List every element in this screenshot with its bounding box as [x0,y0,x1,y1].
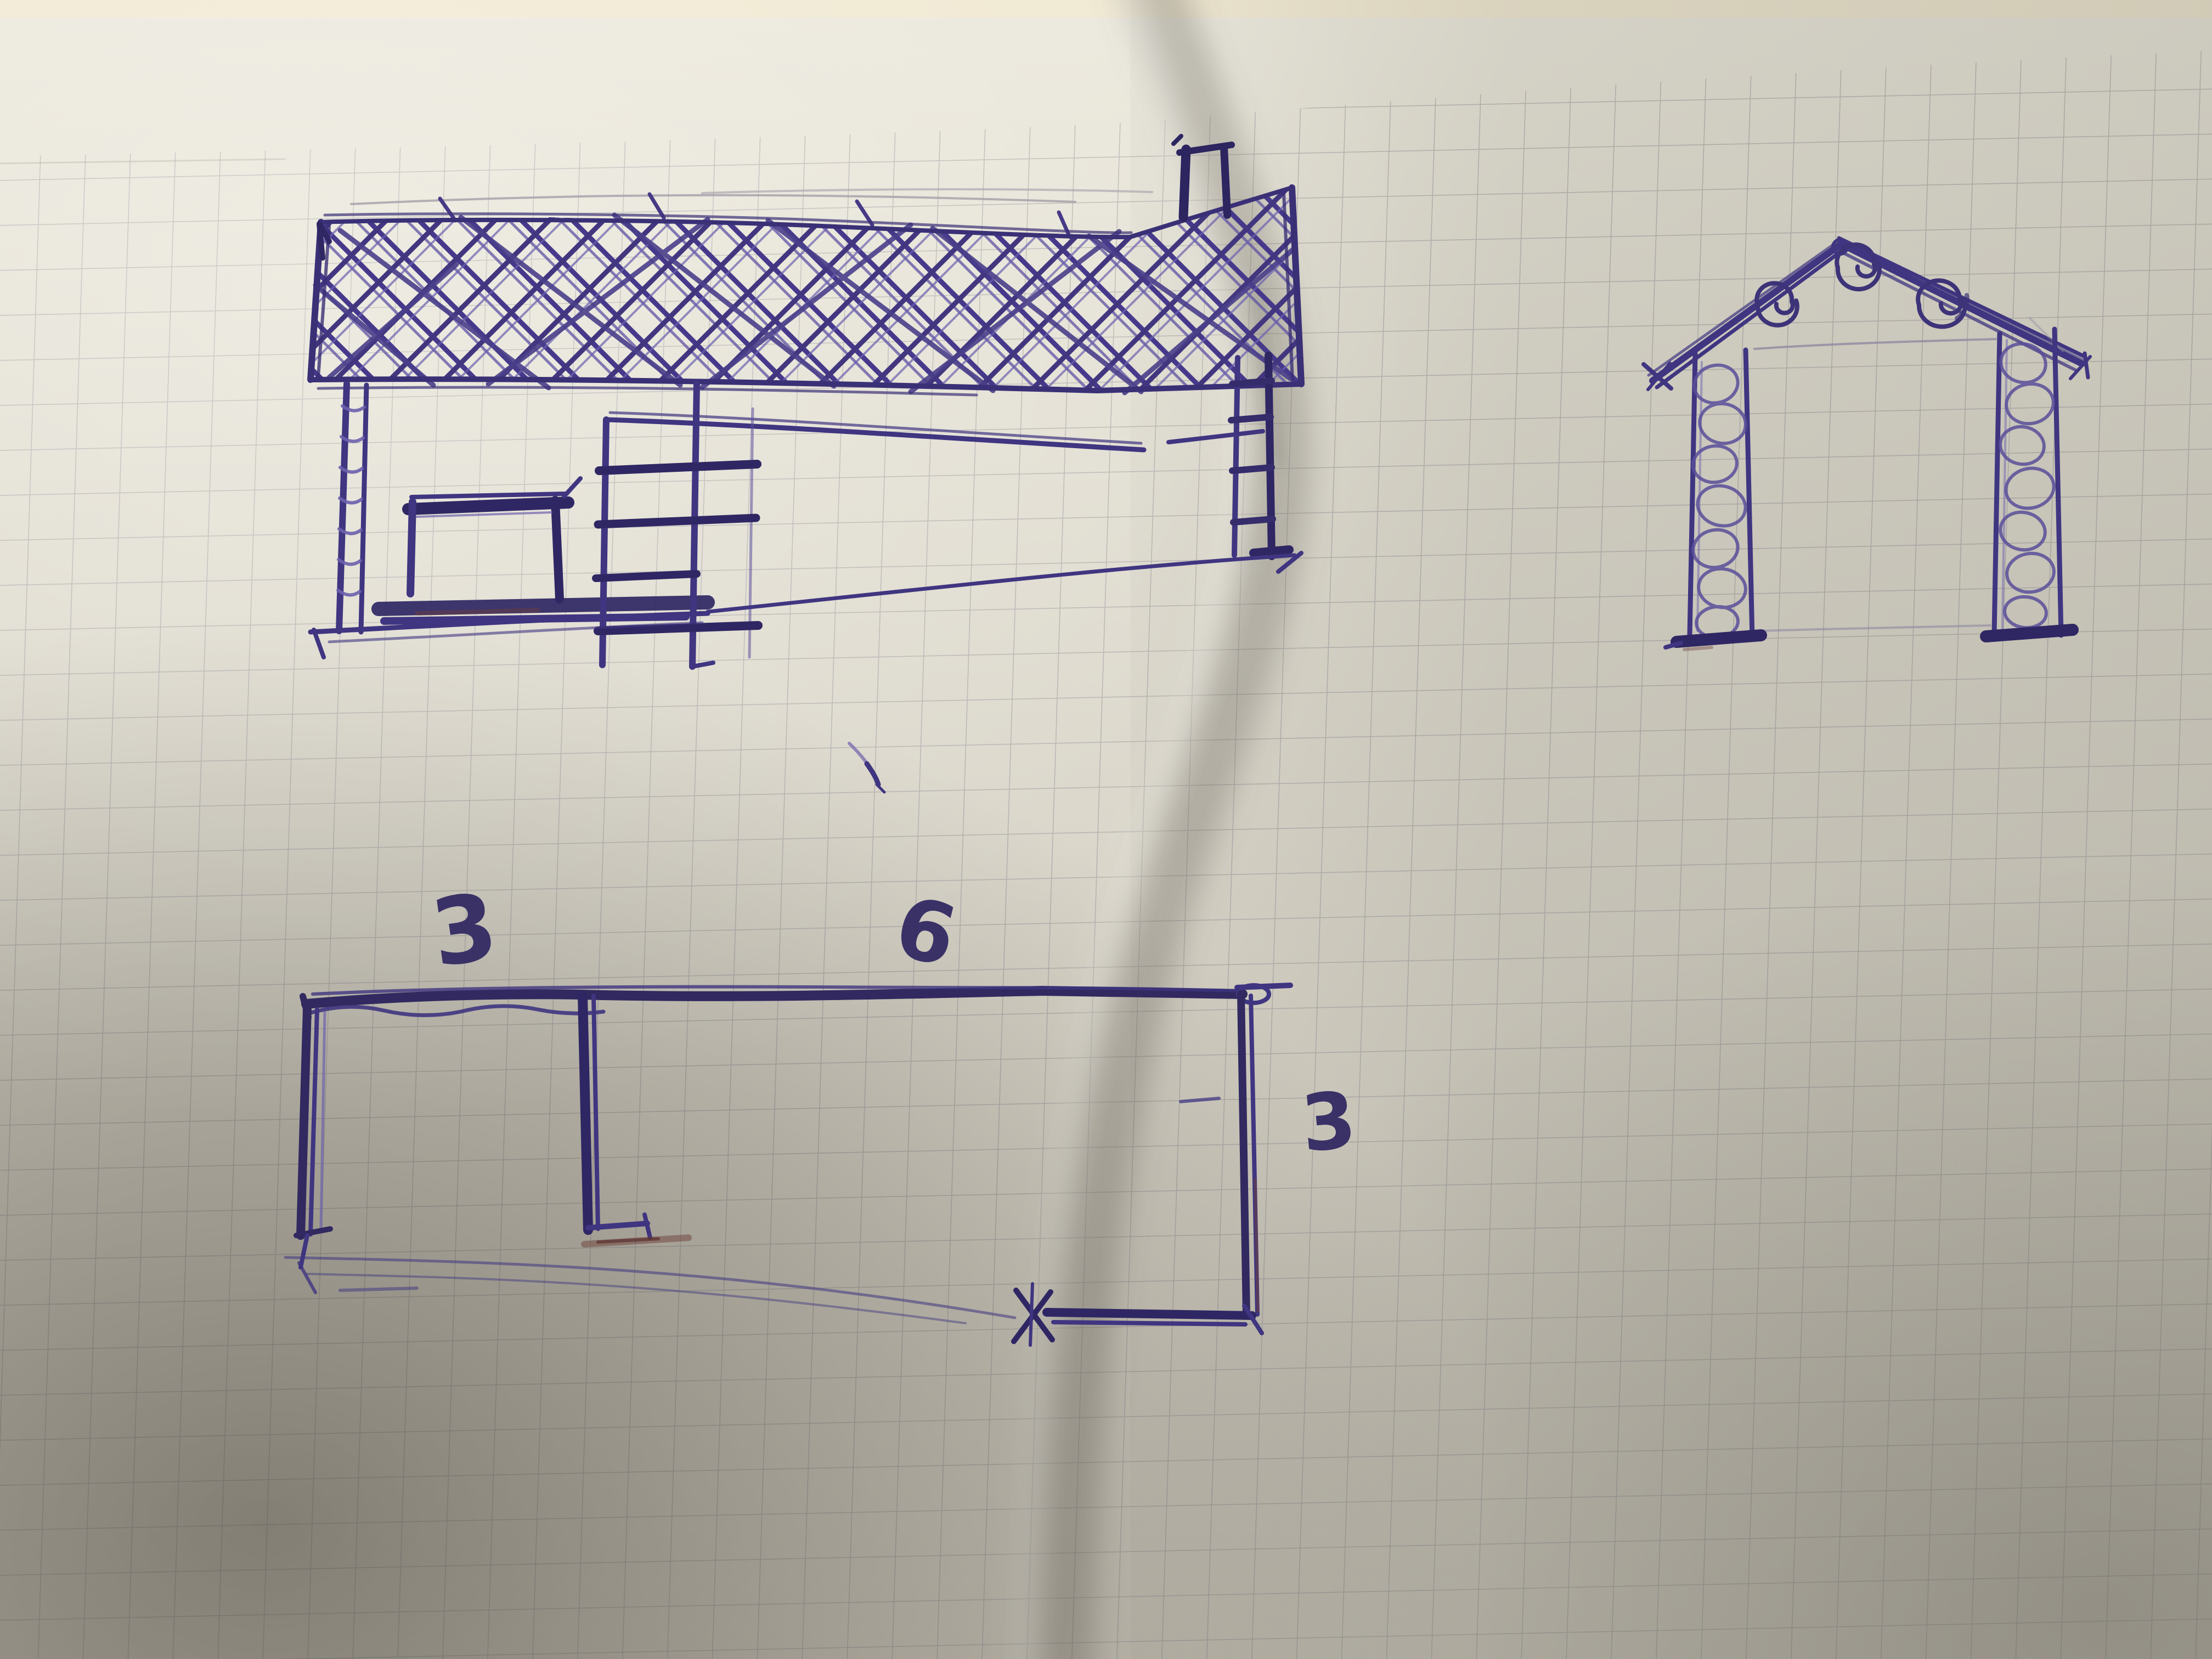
dimension-label-right-height: 3 [1298,1075,1360,1170]
sketch-photo: 3 6 3 [0,0,2212,1659]
